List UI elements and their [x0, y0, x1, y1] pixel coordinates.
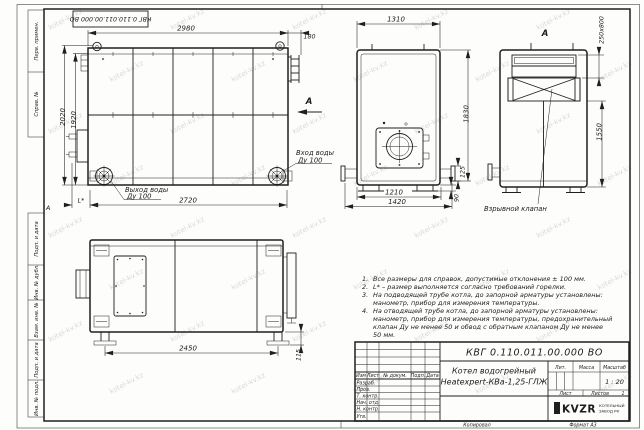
dim-front-height: 1830 [463, 105, 471, 123]
title-block: КВГ 0.110.011.00.000 ВО Котел водогрейны… [355, 342, 629, 421]
sheets-value: 1 [621, 391, 624, 397]
inlet-dn-label: Ду 100 [297, 157, 322, 165]
header-doc: № докум. [382, 373, 407, 379]
burner-mount [66, 130, 88, 162]
note-text: На подводящей трубе котла, до запорной а… [373, 291, 603, 299]
watermark-text: kotel-kv.kz [230, 371, 267, 396]
dim-rear-right: 115 [296, 349, 303, 361]
watermark-text: kotel-kv.kz [535, 7, 572, 32]
dim-front-b1: 1210 [385, 189, 403, 197]
dim-valve-opening: 250x800 [599, 16, 606, 44]
note-text: клапан Ду не менее 50 и обвод с обратным… [373, 323, 603, 331]
product-name-line2: Heatexpert-КВа-1,25-ГЛЖ [441, 378, 548, 387]
lifting-lug-left [93, 42, 101, 50]
watermark-text: kotel-kv.kz [108, 163, 145, 188]
margin-label-perv-primen: Перв. примен. [34, 22, 40, 61]
outlet-dn-label: Ду 100 [126, 193, 151, 201]
copied-label: Копировал [463, 423, 490, 429]
view-a-dimensions: 250x800 1550 [578, 16, 606, 187]
rear-view-dimensions: 2450 115 [105, 325, 304, 361]
watermark-text: kotel-kv.kz [413, 7, 450, 32]
logo-mark [554, 402, 560, 414]
note-num: 3. [362, 291, 368, 299]
watermark-text: kotel-kv.kz [291, 111, 328, 136]
watermark-text: kotel-kv.kz [596, 163, 633, 188]
note-text: Все размеры для справок, допустимые откл… [373, 275, 586, 283]
dim-front-b2: 1420 [388, 198, 406, 206]
watermark-text: kotel-kv.kz [291, 319, 328, 344]
ladder [288, 55, 299, 83]
watermark-text: kotel-kv.kz [291, 7, 328, 32]
watermark-text: kotel-kv.kz [230, 267, 267, 292]
burner-door [376, 128, 429, 168]
header-sheet: Лист [558, 391, 571, 397]
margin-label-podp-data-2: Подп. и дата [34, 342, 40, 377]
note-num: 1. [362, 275, 368, 283]
header-sign: Подп. [411, 373, 426, 379]
note-text: манометр, прибор для измерения температу… [373, 315, 612, 323]
lifting-lug-right [276, 42, 284, 50]
row-nachotd: Нач. отд. [357, 400, 380, 406]
drawing-canvas: kotel-kv.kzkotel-kv.kzkotel-kv.kzkotel-k… [0, 0, 644, 430]
org-line2: ЗАВОД РК [599, 409, 620, 414]
watermark-text: kotel-kv.kz [230, 163, 267, 188]
note-text: На отводящей трубе котла, до запорной ар… [373, 307, 598, 315]
dim-front-width: 1310 [387, 16, 405, 24]
watermark-text: kotel-kv.kz [108, 59, 145, 84]
note-text: 50 мм. [373, 331, 395, 339]
dim-burner-length: L* [78, 198, 85, 205]
economizer-strip [283, 253, 296, 323]
title-doc-number: КВГ 0.110.011.00.000 ВО [466, 348, 603, 359]
watermark-text: kotel-kv.kz [47, 215, 84, 240]
note-num: 4. [362, 307, 368, 315]
margin-label-inv-podl: Инв. № подл. [34, 380, 40, 416]
doc-number-stamp-text: КВГ 0.110.011.00.000 ВО [70, 15, 152, 22]
watermark-text: kotel-kv.kz [596, 267, 633, 292]
margin-label-podp-data-1: Подп. и дата [34, 221, 40, 256]
watermark-text: kotel-kv.kz [291, 215, 328, 240]
rear-feet [94, 332, 289, 345]
dim-front-90: 90 [454, 194, 461, 202]
row-razrab: Разраб. [357, 381, 376, 387]
dim-side-ext: 180 [304, 34, 316, 41]
drawing-sheet: kotel-kv.kzkotel-kv.kzkotel-kv.kzkotel-k… [0, 0, 644, 430]
row-utv: Утв. [357, 414, 367, 420]
header-sheets: Листов [590, 391, 609, 397]
watermark-text: kotel-kv.kz [413, 215, 450, 240]
row-prov: Пров. [357, 387, 371, 393]
rear-view: 2450 115 [76, 240, 304, 361]
view-a: А 250x800 [484, 16, 606, 213]
left-bracket [81, 55, 88, 71]
row-tkontr: Т. контр. [357, 394, 379, 400]
header-izm: Изм [356, 373, 366, 379]
view-a-arrowhead [297, 109, 307, 115]
note-num: 2. [362, 283, 368, 291]
explosion-valve-callout: Взрывной клапан [484, 205, 547, 213]
view-a-feet [502, 187, 585, 193]
header-list: Лист [366, 373, 379, 379]
dim-view-a-height: 1550 [596, 123, 604, 141]
zone-letter: А [45, 205, 50, 212]
view-a-title: А [541, 29, 549, 39]
watermark-text: kotel-kv.kz [535, 215, 572, 240]
margin-label-inv-dubl: Инв. № дубл. [34, 264, 40, 300]
rear-burner-stub [76, 270, 90, 298]
watermark-text: kotel-kv.kz [230, 59, 267, 84]
header-lit: Лит. [554, 365, 566, 371]
note-text: L* – размер выполняется согласно требова… [373, 283, 566, 291]
watermark-text: kotel-kv.kz [169, 215, 206, 240]
watermark-text: kotel-kv.kz [474, 59, 511, 84]
watermark-layer: kotel-kv.kzkotel-kv.kzkotel-kv.kzkotel-k… [47, 7, 633, 396]
header-date: Дата [425, 373, 438, 379]
dim-rear-bottom: 2450 [179, 345, 197, 353]
format-label: Формат А3 [569, 423, 596, 429]
dim-side-bottom: 2720 [179, 197, 197, 205]
dim-side-width: 2980 [177, 25, 195, 33]
scale-value: 1 : 20 [605, 378, 624, 386]
view-a-arrow-label: А [305, 97, 313, 107]
watermark-text: kotel-kv.kz [474, 163, 511, 188]
product-name-line1: Котел водогрейный [452, 367, 536, 376]
org-line1: КОТЕЛЬНЫЙ [599, 403, 625, 408]
margin-label-vzam-inv: Взам. инв. № [34, 302, 40, 337]
watermark-text: kotel-kv.kz [47, 319, 84, 344]
header-scale: Масштаб [603, 365, 626, 371]
margin-columns: Перв. примен. Справ. № Подп. и дата Инв.… [28, 10, 50, 417]
watermark-text: kotel-kv.kz [596, 59, 633, 84]
notes-block: 1. Все размеры для справок, допустимые о… [362, 275, 612, 339]
dim-side-height-outer: 2020 [59, 108, 67, 126]
explosion-valve-box [508, 78, 580, 101]
dim-side-height-inner: 1920 [70, 111, 78, 129]
note-text: манометр, прибор для измерения температу… [373, 299, 540, 307]
row-nkontr: Н. контр. [357, 407, 380, 413]
sheet-frame [17, 5, 640, 429]
dim-front-125: 125 [460, 166, 467, 178]
margin-label-sprav-n: Справ. № [34, 91, 40, 116]
header-mass: Масса [579, 365, 594, 371]
watermark-text: kotel-kv.kz [535, 111, 572, 136]
watermark-text: kotel-kv.kz [108, 371, 145, 396]
logo-text: KVZR [562, 404, 596, 416]
